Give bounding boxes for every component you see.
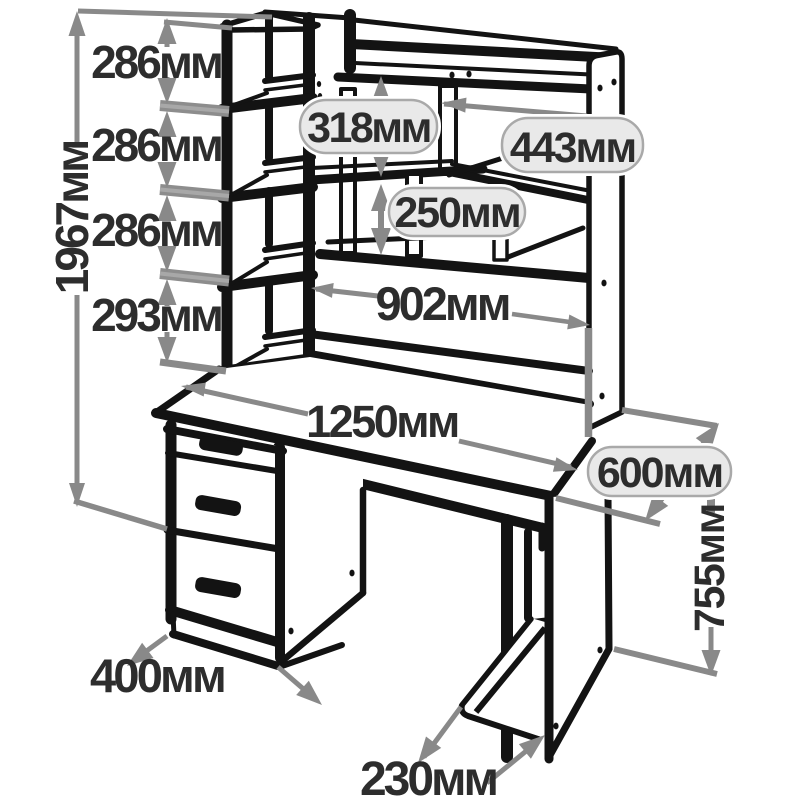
svg-text:902мм: 902мм — [376, 277, 509, 330]
svg-text:286мм: 286мм — [91, 204, 221, 256]
svg-text:250мм: 250мм — [394, 189, 519, 237]
svg-text:755мм: 755мм — [686, 504, 734, 632]
svg-text:600мм: 600мм — [597, 449, 722, 497]
svg-text:1250мм: 1250мм — [306, 396, 458, 447]
svg-text:293мм: 293мм — [91, 289, 221, 341]
svg-text:286мм: 286мм — [91, 36, 221, 88]
svg-text:286мм: 286мм — [91, 119, 221, 171]
svg-text:230мм: 230мм — [360, 753, 497, 800]
svg-text:318мм: 318мм — [307, 104, 430, 152]
svg-text:400мм: 400мм — [90, 649, 224, 702]
svg-text:443мм: 443мм — [510, 124, 635, 172]
